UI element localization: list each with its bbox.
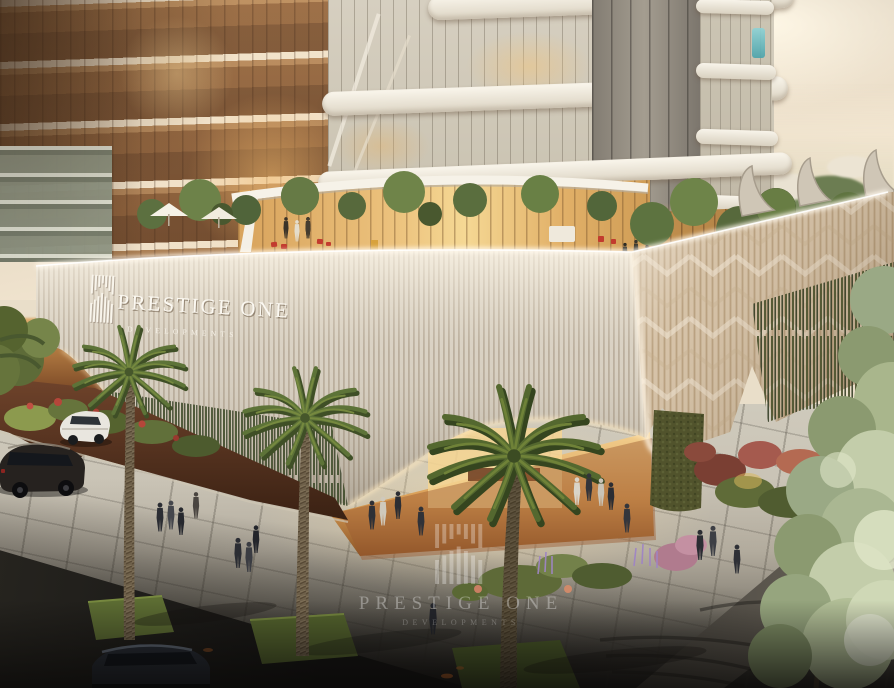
rendering-scene: PRESTIGE ONE PRESTIGE ONE DEVELOPMENTS [0,0,894,688]
dark-suv [0,444,88,498]
corner-vignette [0,0,240,240]
bottom-vignette [0,600,894,688]
